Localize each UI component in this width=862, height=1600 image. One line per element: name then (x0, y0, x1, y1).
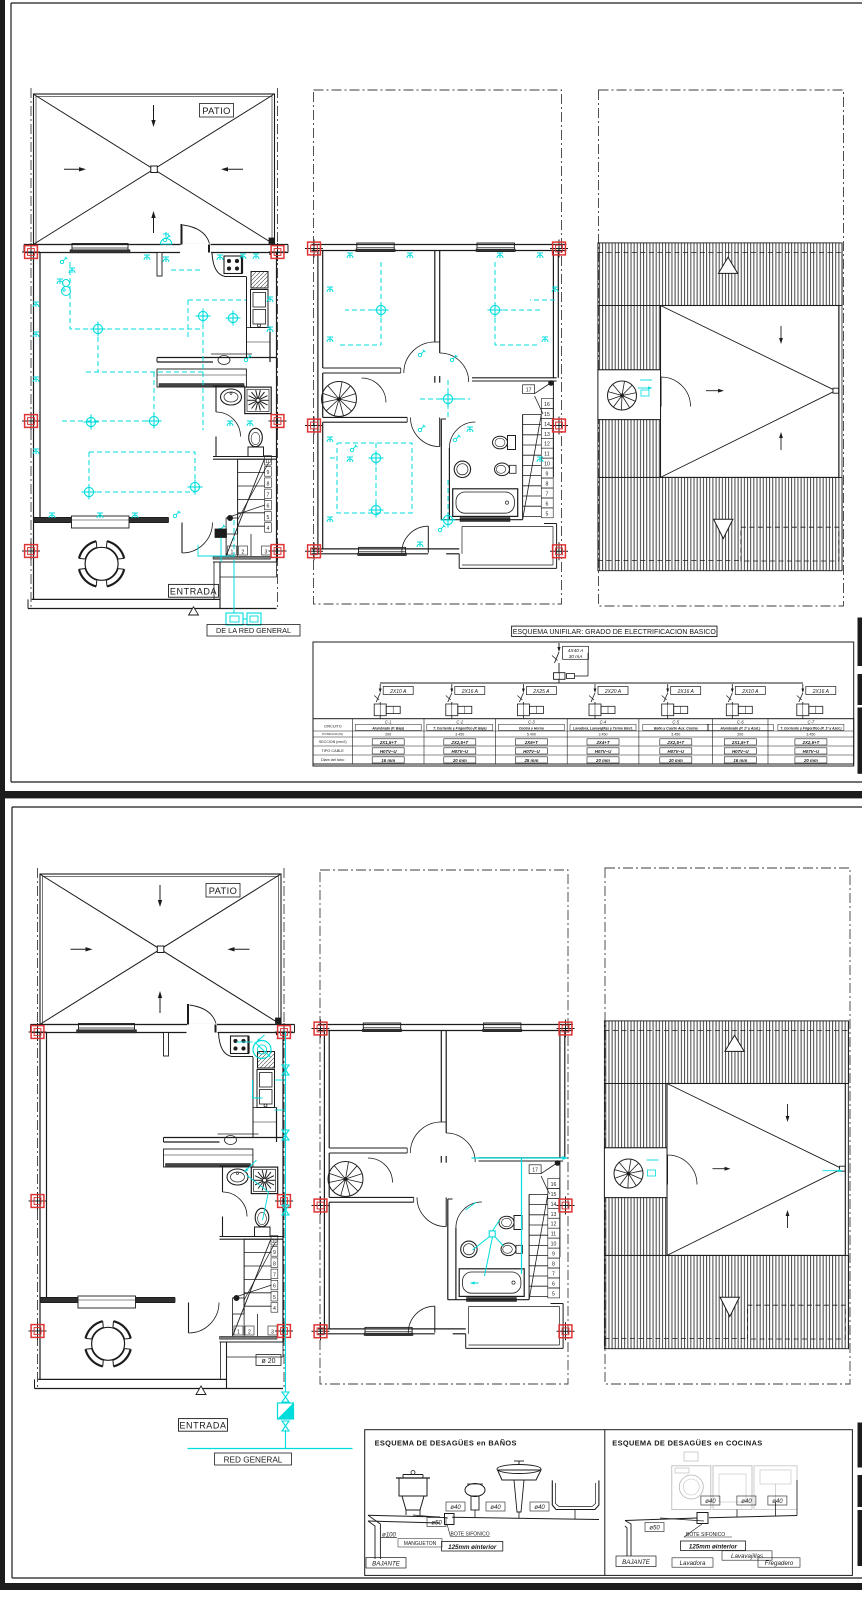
svg-text:9: 9 (267, 470, 270, 476)
svg-text:20 mm: 20 mm (668, 758, 683, 763)
svg-text:ø 20: ø 20 (261, 1358, 275, 1365)
svg-text:2X16 A: 2X16 A (461, 689, 479, 695)
svg-text:17: 17 (526, 388, 532, 394)
svg-text:3.450: 3.450 (806, 733, 815, 737)
svg-text:C-2: C-2 (456, 720, 463, 725)
svg-text:MANGUETON: MANGUETON (404, 1541, 437, 1547)
svg-text:2X16 A: 2X16 A (812, 689, 830, 695)
svg-text:8: 8 (273, 1261, 276, 1267)
svg-text:2X10 A: 2X10 A (741, 689, 759, 695)
svg-text:5: 5 (273, 1295, 276, 1301)
svg-text:3.450: 3.450 (599, 733, 608, 737)
svg-text:4: 4 (273, 1306, 276, 1312)
svg-text:SECCION (mm2): SECCION (mm2) (319, 740, 347, 744)
svg-text:9: 9 (552, 1252, 555, 1258)
svg-text:10: 10 (551, 1242, 557, 1248)
svg-text:5.400: 5.400 (527, 733, 536, 737)
svg-text:4: 4 (267, 526, 270, 532)
svg-text:2X1,5+T: 2X1,5+T (731, 740, 749, 745)
svg-text:2: 2 (242, 549, 245, 555)
svg-text:7: 7 (267, 493, 270, 499)
svg-text:11: 11 (544, 452, 549, 458)
svg-text:2X16 A: 2X16 A (677, 689, 695, 695)
svg-text:RED GENERAL: RED GENERAL (224, 1456, 283, 1465)
svg-text:C-1: C-1 (385, 720, 392, 725)
svg-text:12: 12 (551, 1222, 557, 1228)
svg-text:ø50: ø50 (431, 1521, 442, 1527)
svg-text:ø40: ø40 (490, 1505, 501, 1511)
svg-text:H07V–U: H07V–U (803, 749, 820, 754)
svg-text:C-5: C-5 (672, 720, 679, 725)
svg-text:13: 13 (551, 1212, 557, 1218)
svg-text:CIRCUITO: CIRCUITO (324, 724, 342, 728)
svg-text:Diam del tubo: Diam del tubo (321, 758, 344, 762)
svg-text:2: 2 (248, 1329, 251, 1335)
svg-text:7: 7 (552, 1272, 555, 1278)
svg-text:20 mm: 20 mm (452, 758, 467, 763)
svg-text:6: 6 (267, 504, 270, 510)
svg-text:5: 5 (267, 515, 270, 521)
svg-text:200: 200 (737, 733, 743, 737)
svg-text:14: 14 (551, 1202, 557, 1208)
svg-text:2X20 A: 2X20 A (604, 689, 622, 695)
svg-text:25 mm: 25 mm (523, 758, 538, 763)
svg-text:ESQUEMA DE DESAGÜES en COCINAS: ESQUEMA DE DESAGÜES en COCINAS (612, 1438, 762, 1447)
svg-text:30 mA: 30 mA (569, 654, 583, 660)
svg-text:5: 5 (552, 1291, 555, 1297)
svg-text:C-7: C-7 (808, 720, 815, 725)
svg-text:H07V–U: H07V–U (451, 749, 468, 754)
svg-text:8: 8 (552, 1262, 555, 1268)
svg-text:20 mm: 20 mm (803, 758, 818, 763)
svg-text:2X2,5+T: 2X2,5+T (802, 740, 820, 745)
svg-text:H07V–U: H07V–U (595, 749, 612, 754)
svg-text:ø40: ø40 (772, 1499, 783, 1505)
svg-text:16: 16 (551, 1182, 557, 1188)
svg-text:Cocina y Horno: Cocina y Horno (519, 726, 544, 730)
svg-text:13: 13 (544, 432, 550, 438)
svg-text:Lavadora, Lavavajillas y Termo: Lavadora, Lavavajillas y Termo Elect. (573, 726, 633, 730)
svg-text:12: 12 (544, 442, 550, 448)
svg-text:H07V–U: H07V–U (667, 749, 684, 754)
svg-text:200: 200 (385, 733, 391, 737)
svg-text:1: 1 (237, 1329, 240, 1335)
svg-text:T. Corriente y Frigorifico (P.: T. Corriente y Frigorifico (P. Baja) (433, 726, 487, 730)
svg-text:ENTRADA: ENTRADA (170, 586, 217, 596)
svg-text:16: 16 (544, 402, 550, 408)
svg-text:15: 15 (551, 1192, 557, 1198)
svg-text:8: 8 (267, 481, 270, 487)
svg-text:16 mm: 16 mm (381, 758, 395, 763)
svg-text:14: 14 (544, 422, 550, 428)
svg-text:7: 7 (273, 1273, 276, 1279)
svg-text:ENTRADA: ENTRADA (179, 1421, 226, 1431)
svg-text:Lavadora: Lavadora (680, 1560, 706, 1567)
svg-text:Alumbrado (P. Baja): Alumbrado (P. Baja) (371, 726, 405, 730)
svg-text:BAJANTE: BAJANTE (372, 1561, 401, 1568)
svg-text:9: 9 (273, 1250, 276, 1256)
svg-text:6: 6 (546, 501, 549, 507)
svg-text:125mm øinterior: 125mm øinterior (448, 1544, 497, 1551)
svg-text:ø50: ø50 (649, 1526, 660, 1532)
svg-text:ESQUEMA UNIFILAR: GRADO DE ELE: ESQUEMA UNIFILAR: GRADO DE ELECTRIFICACI… (513, 629, 717, 636)
svg-text:ø40: ø40 (534, 1505, 545, 1511)
svg-text:4X40 A: 4X40 A (568, 648, 584, 654)
svg-text:2X25 A: 2X25 A (532, 689, 550, 695)
svg-text:3: 3 (271, 1329, 274, 1335)
svg-text:PATIO: PATIO (209, 886, 238, 896)
svg-text:ø40: ø40 (741, 1499, 752, 1505)
svg-text:Fregadero: Fregadero (765, 1560, 794, 1567)
svg-text:125mm øinterior: 125mm øinterior (689, 1544, 738, 1551)
svg-text:3: 3 (265, 549, 268, 555)
svg-text:7: 7 (546, 491, 549, 497)
svg-text:10: 10 (544, 462, 550, 468)
svg-text:2X6+T: 2X6+T (524, 740, 538, 745)
svg-text:C-6: C-6 (737, 720, 744, 725)
svg-text:2X2,5+T: 2X2,5+T (450, 740, 468, 745)
svg-text:ESQUEMA DE DESAGÜES en BAÑOS: ESQUEMA DE DESAGÜES en BAÑOS (375, 1438, 517, 1447)
svg-text:2X4+T: 2X4+T (595, 740, 609, 745)
svg-text:20 mm: 20 mm (595, 758, 610, 763)
svg-text:1: 1 (231, 549, 234, 555)
svg-text:PATIO: PATIO (202, 106, 231, 116)
svg-text:DE LA RED GENERAL: DE LA RED GENERAL (216, 626, 291, 635)
svg-text:9: 9 (546, 472, 549, 478)
svg-text:BAJANTE: BAJANTE (622, 1559, 651, 1566)
svg-text:6: 6 (273, 1284, 276, 1290)
svg-text:TIPO CABLE: TIPO CABLE (322, 749, 345, 753)
svg-text:2X1,5+T: 2X1,5+T (379, 740, 397, 745)
svg-text:ø40: ø40 (450, 1505, 461, 1511)
svg-text:H07V–U: H07V–U (380, 749, 397, 754)
svg-text:17: 17 (532, 1168, 538, 1174)
svg-text:11: 11 (551, 1232, 556, 1238)
svg-text:3.450: 3.450 (671, 733, 680, 737)
svg-text:2X2,5+T: 2X2,5+T (666, 740, 684, 745)
svg-text:C-3: C-3 (528, 720, 535, 725)
svg-text:H07V–U: H07V–U (523, 749, 540, 754)
svg-text:Alumbrado (P. 1ª y Azot.): Alumbrado (P. 1ª y Azot.) (719, 726, 761, 730)
svg-text:T. Corriente y Frigorifico (P.: T. Corriente y Frigorifico (P. 1ª y Azot… (780, 726, 842, 730)
svg-text:C-4: C-4 (600, 720, 607, 725)
svg-text:2X10 A: 2X10 A (389, 689, 407, 695)
svg-text:5: 5 (546, 511, 549, 517)
svg-text:8: 8 (546, 482, 549, 488)
svg-text:POTENCIA (W): POTENCIA (W) (322, 732, 343, 736)
svg-text:ø40: ø40 (705, 1499, 716, 1505)
svg-text:16 mm: 16 mm (733, 758, 747, 763)
svg-text:Baño y Cuarto Aux. Cocina: Baño y Cuarto Aux. Cocina (654, 726, 698, 730)
svg-text:15: 15 (544, 412, 550, 418)
svg-text:3.450: 3.450 (455, 733, 464, 737)
svg-text:6: 6 (552, 1281, 555, 1287)
svg-text:H07V–U: H07V–U (732, 749, 749, 754)
